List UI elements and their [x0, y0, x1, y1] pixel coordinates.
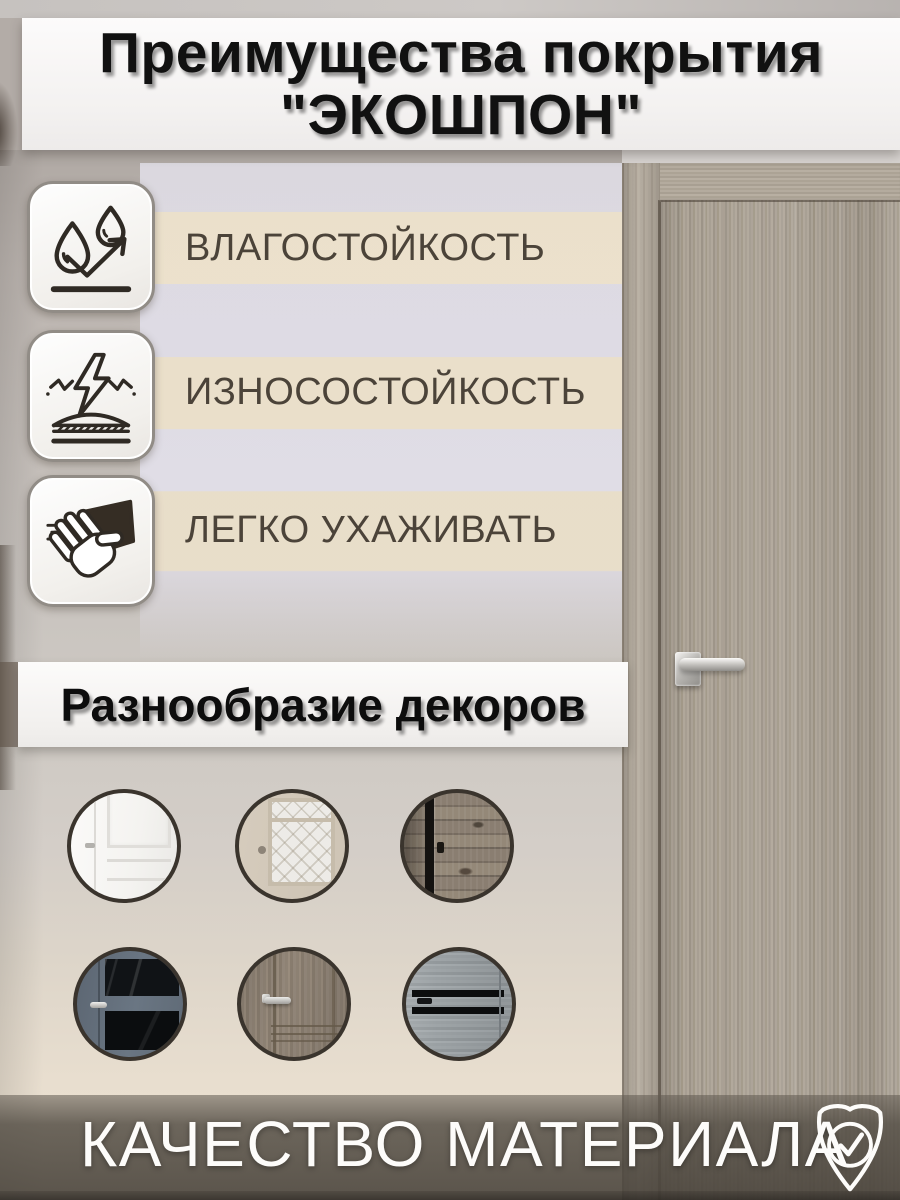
- decor-banner: Разнообразие декоров: [18, 662, 628, 747]
- page-title-line2: "ЭКОШПОН": [280, 84, 642, 146]
- title-left-wall-sliver: [0, 18, 22, 150]
- decor-brown-wood-classic-door: [237, 947, 351, 1061]
- title-banner: Преимущества покрытия "ЭКОШПОН": [22, 18, 900, 150]
- decor-grey-wood-door-black-stripes: [402, 947, 516, 1061]
- quality-label: КАЧЕСТВО МАТЕРИАЛА: [80, 1095, 849, 1193]
- decor-dark-rustic-wood-door: [400, 789, 514, 903]
- decor-slate-blue-door-black-glass: [73, 947, 187, 1061]
- hand-wiping-cloth-icon: [42, 490, 140, 592]
- feature-card-care: [27, 475, 155, 607]
- floor-shadow-strip: [0, 1191, 900, 1200]
- door-frame-top-rail: [622, 163, 900, 202]
- wall-above-door: [622, 150, 900, 164]
- water-drops-bounce-icon: [42, 196, 140, 298]
- decor-banner-left-shadow: [0, 662, 18, 747]
- wall-top-strip: [0, 0, 900, 18]
- feature-label-care: ЛЕГКО УХАЖИВАТЬ: [185, 490, 625, 570]
- decor-white-classic-panel-door: [67, 789, 181, 903]
- shield-check-icon: [808, 1102, 892, 1196]
- ecoshpon-promo-image: Преимущества покрытия "ЭКОШПОН" ВЛАГОСТО…: [0, 0, 900, 1200]
- feature-card-moisture: [27, 181, 155, 313]
- door-leaf: [658, 200, 900, 1200]
- feature-card-wear: [27, 330, 155, 462]
- decor-ivory-door-patterned-glass: [235, 789, 349, 903]
- door-handle-lever: [679, 658, 745, 671]
- feature-label-wear: ИЗНОСОСТОЙКОСТЬ: [185, 356, 625, 429]
- feature-label-moisture: ВЛАГОСТОЙКОСТЬ: [185, 212, 625, 284]
- decors-title: Разнообразие декоров: [60, 678, 585, 732]
- impact-protection-icon: [42, 345, 140, 447]
- page-title-line1: Преимущества покрытия: [99, 22, 823, 84]
